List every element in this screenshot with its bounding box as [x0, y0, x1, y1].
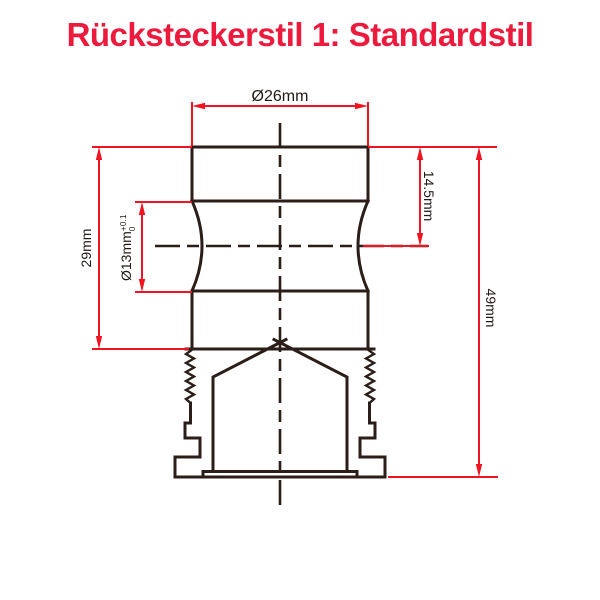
arrowhead-up-icon [476, 147, 482, 160]
arrowhead-up-icon [96, 147, 102, 160]
thread-right [366, 351, 374, 404]
arrowhead-up-icon [139, 202, 145, 215]
diagram-canvas: Rücksteckerstil 1: Standardstil [0, 0, 600, 600]
arrowhead-left-icon [192, 103, 205, 109]
dim-label-body-height: 29mm [78, 229, 94, 268]
dimension-center-offset: 14.5mm [363, 147, 437, 246]
dim-label-total-height: 49mm [483, 289, 499, 328]
arrowhead-down-icon [476, 464, 482, 477]
technical-drawing: Ø26mm 29mm Ø13mm+0.10 14.5mm [0, 0, 600, 600]
thread-left [186, 351, 194, 404]
arrowhead-up-icon [417, 147, 423, 160]
dimension-total-height: 49mm [388, 147, 499, 477]
arrowhead-down-icon [139, 279, 145, 292]
dim-label-top-diameter: Ø26mm [252, 88, 309, 105]
dim-label-inner-diameter: Ø13mm+0.10 [118, 214, 137, 281]
arrowhead-right-icon [355, 103, 368, 109]
dim-label-center-offset: 14.5mm [421, 171, 437, 222]
arrowhead-down-icon [417, 233, 423, 246]
arrowhead-down-icon [96, 336, 102, 349]
